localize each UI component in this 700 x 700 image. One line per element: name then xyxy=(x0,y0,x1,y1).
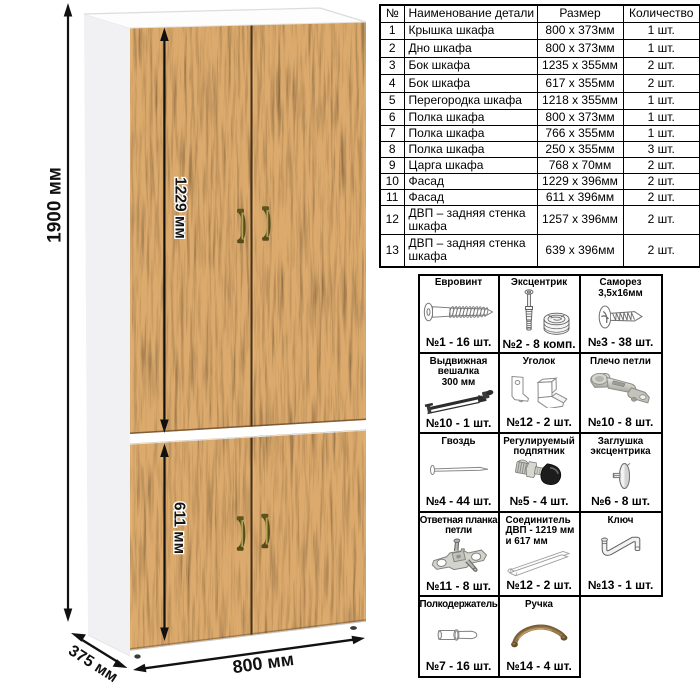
svg-text:1900 мм: 1900 мм xyxy=(45,167,66,243)
svg-text:1229 мм: 1229 мм xyxy=(172,177,189,239)
svg-text:375 мм: 375 мм xyxy=(65,642,120,686)
svg-text:611 мм: 611 мм xyxy=(171,502,188,554)
